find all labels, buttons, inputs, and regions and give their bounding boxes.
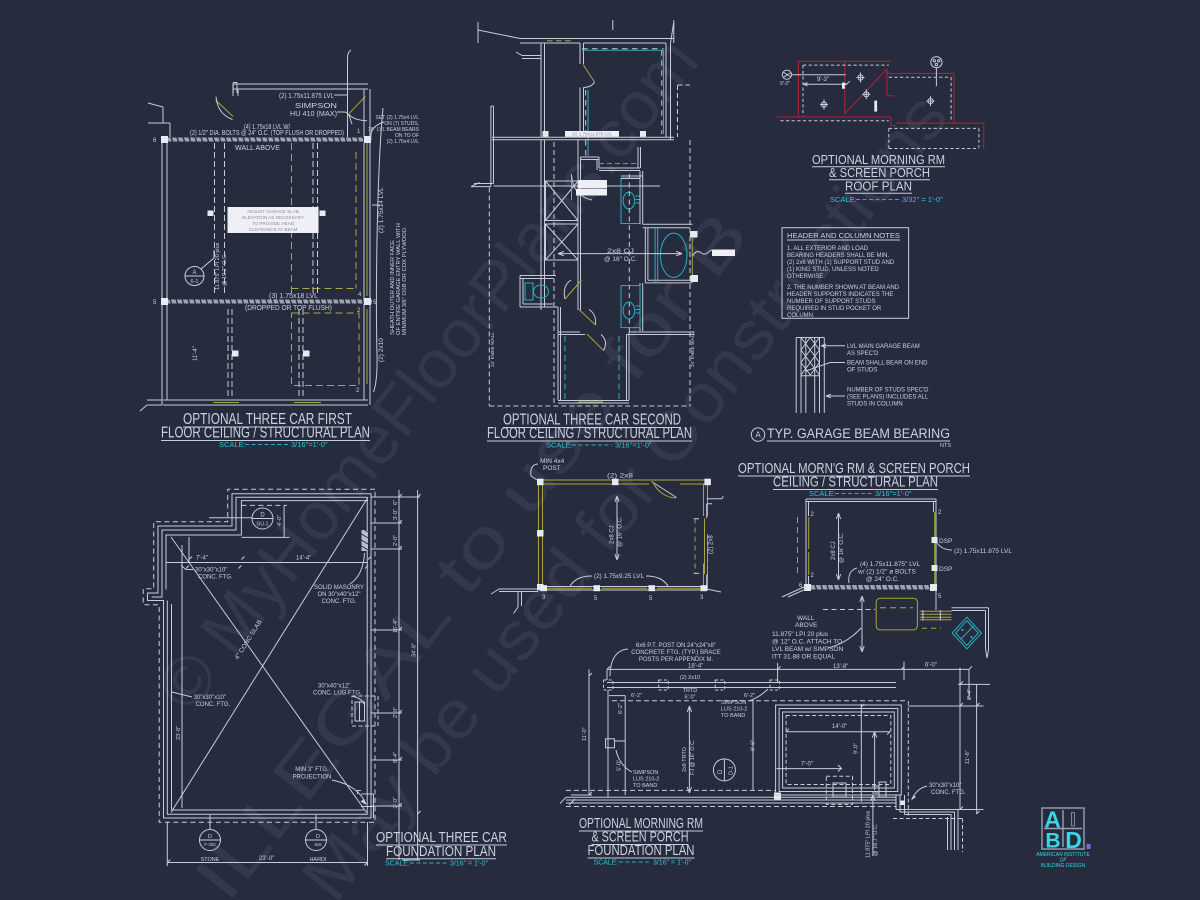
svg-text:16'-4": 16'-4" xyxy=(393,619,399,633)
svg-text:SCALE:: SCALE: xyxy=(219,440,246,449)
svg-text:7'-0": 7'-0" xyxy=(801,762,813,768)
svg-text:D: D xyxy=(718,769,724,774)
svg-text:HARDI: HARDI xyxy=(309,857,327,863)
svg-text:14'-0": 14'-0" xyxy=(832,724,847,730)
svg-text:ITT 31.88 OR EQUAL: ITT 31.88 OR EQUAL xyxy=(772,654,835,661)
svg-text:A: A xyxy=(192,270,196,276)
svg-text:SCALE:: SCALE: xyxy=(594,860,619,867)
svg-text:6'-2": 6'-2" xyxy=(744,693,755,699)
svg-text:TYP. GARAGE BEAM BEARING: TYP. GARAGE BEAM BEARING xyxy=(767,426,950,441)
svg-text:11.875" LPI 20 plus: 11.875" LPI 20 plus xyxy=(866,810,872,858)
svg-text:DSP: DSP xyxy=(939,566,952,573)
svg-text:(2) 1.75x11.875 LVL: (2) 1.75x11.875 LVL xyxy=(279,93,334,100)
svg-text:(3) 1.75x18 LVL: (3) 1.75x18 LVL xyxy=(269,293,318,300)
svg-text:FLOOR CEILING / STRUCTURAL PLA: FLOOR CEILING / STRUCTURAL PLAN xyxy=(487,425,692,442)
svg-text:30"x30"x10": 30"x30"x10" xyxy=(195,568,227,574)
svg-text:HEADER SUPPORTS INDICATES THE: HEADER SUPPORTS INDICATES THE xyxy=(787,292,893,298)
svg-text:NTS: NTS xyxy=(940,443,951,449)
svg-text:23'-8": 23'-8" xyxy=(176,726,182,740)
svg-text:(1) KING STUD, UNLESS NOTED: (1) KING STUD, UNLESS NOTED xyxy=(787,267,879,273)
svg-text:3/16" = 1'-0": 3/16" = 1'-0" xyxy=(653,860,692,867)
svg-text:13'-8": 13'-8" xyxy=(833,664,848,670)
svg-text:FJ @ 16" O.C.: FJ @ 16" O.C. xyxy=(690,739,696,775)
svg-text:2x8 CJ: 2x8 CJ xyxy=(831,541,837,560)
svg-text:SCALE:: SCALE: xyxy=(385,861,410,868)
svg-text:11.875" LPI 20 plus: 11.875" LPI 20 plus xyxy=(215,242,221,290)
svg-text:8'-4": 8'-4" xyxy=(393,752,399,763)
svg-text:OF STUDS: OF STUDS xyxy=(847,368,877,374)
svg-text:FLOOR CEILING / STRUCTURAL PLA: FLOOR CEILING / STRUCTURAL PLAN xyxy=(161,425,370,442)
svg-text:BEARING HEADERS SHALL BE MIN.: BEARING HEADERS SHALL BE MIN. xyxy=(787,253,889,259)
svg-text:6x6 P.T. POST ON 24"x24"x8": 6x6 P.T. POST ON 24"x24"x8" xyxy=(636,643,716,649)
svg-text:2'-0": 2'-0" xyxy=(393,797,399,808)
svg-text:24' KNEE WALL: 24' KNEE WALL xyxy=(690,332,696,367)
svg-text:OTHERWISE.: OTHERWISE. xyxy=(787,274,825,280)
svg-text:@ 16.7" O.C.: @ 16.7" O.C. xyxy=(873,823,879,856)
svg-text:2'-0": 2'-0" xyxy=(393,535,399,546)
svg-text:DSP: DSP xyxy=(939,538,952,545)
svg-text:6": 6" xyxy=(393,500,399,505)
svg-text:(DROPPED OR TOP FLUSH): (DROPPED OR TOP FLUSH) xyxy=(245,305,332,312)
svg-text:9'-3": 9'-3" xyxy=(817,77,829,83)
svg-text:SCALE:: SCALE: xyxy=(830,195,857,204)
svg-text:(2) 1.75x11.875 LVL: (2) 1.75x11.875 LVL xyxy=(572,132,613,137)
svg-text:HEADER AND COLUMN NOTES: HEADER AND COLUMN NOTES xyxy=(787,231,900,240)
svg-text:ELEVATION AS NECESSARY: ELEVATION AS NECESSARY xyxy=(242,215,304,220)
svg-text:B: B xyxy=(1045,830,1060,853)
svg-text:6'-2": 6'-2" xyxy=(618,703,624,714)
svg-text:POSTS PER APPENDIX M.: POSTS PER APPENDIX M. xyxy=(639,657,714,663)
svg-text:11'-0": 11'-0" xyxy=(582,727,588,741)
svg-text:SCALE:: SCALE: xyxy=(546,441,573,450)
svg-text:ABOVE: ABOVE xyxy=(795,622,818,629)
svg-text:CONC. FTG.: CONC. FTG. xyxy=(196,702,231,708)
svg-text:5'-0": 5'-0" xyxy=(617,760,623,771)
svg-text:3/32" = 1'-0": 3/32" = 1'-0" xyxy=(902,195,943,204)
svg-text:23'-0": 23'-0" xyxy=(259,856,274,862)
svg-text:6'-0": 6'-0" xyxy=(685,695,696,701)
svg-text:w/ (2) 1/2" ø BOLTS: w/ (2) 1/2" ø BOLTS xyxy=(857,569,916,576)
svg-text:CONC. FTG.: CONC. FTG. xyxy=(198,575,233,581)
svg-text:SCALE:: SCALE: xyxy=(809,489,836,498)
svg-text:6-1: 6-1 xyxy=(191,279,199,285)
svg-text:(2) 2x8: (2) 2x8 xyxy=(607,473,633,480)
svg-text:GU-1: GU-1 xyxy=(257,522,269,528)
svg-text:34'-8": 34'-8" xyxy=(412,643,418,657)
svg-text:ADJUST GARAGE SLAB: ADJUST GARAGE SLAB xyxy=(247,209,299,214)
svg-text:MINIMUM 3/8" OSB OR COX PLYWOO: MINIMUM 3/8" OSB OR COX PLYWOOD. xyxy=(402,226,408,335)
svg-text:3/16"=1'-0": 3/16"=1'-0" xyxy=(291,440,328,449)
svg-text:30"x40"x12": 30"x40"x12" xyxy=(318,684,350,690)
svg-text:3/16"=1'-0": 3/16"=1'-0" xyxy=(875,489,912,498)
svg-text:CONC. FTG.: CONC. FTG. xyxy=(322,599,357,605)
svg-text:SOLID MASONRY: SOLID MASONRY xyxy=(314,585,364,591)
svg-text:MIN 3" FTG.: MIN 3" FTG. xyxy=(295,767,329,773)
svg-text:POST: POST xyxy=(543,465,561,472)
svg-text:(2) 1.75x14 LVL: (2) 1.75x14 LVL xyxy=(378,187,385,233)
svg-text:TO BAND: TO BAND xyxy=(633,783,657,789)
svg-text:11'-8": 11'-8" xyxy=(965,750,971,764)
svg-text:CONC. FTG.: CONC. FTG. xyxy=(931,790,966,796)
svg-text:FOUNDATION PLAN: FOUNDATION PLAN xyxy=(386,843,496,860)
svg-text:SIMPSON: SIMPSON xyxy=(295,103,337,110)
svg-text:TO BAND: TO BAND xyxy=(721,713,745,719)
svg-text:9'-6": 9'-6" xyxy=(751,740,757,751)
svg-text:4'-0": 4'-0" xyxy=(277,515,283,526)
svg-text:30"x30"x10": 30"x30"x10" xyxy=(194,695,226,701)
svg-text:3/16"=1'-0": 3/16"=1'-0" xyxy=(615,441,652,450)
svg-text:18'-4": 18'-4" xyxy=(688,664,703,670)
svg-text:CONCRETE FTG. (TYP.) BRACE: CONCRETE FTG. (TYP.) BRACE xyxy=(631,650,721,656)
svg-text:ROOF PLAN: ROOF PLAN xyxy=(845,179,912,194)
svg-text:(SEE PLANS) INCLUDES ALL: (SEE PLANS) INCLUDES ALL xyxy=(847,395,929,401)
svg-text:6'-2": 6'-2" xyxy=(631,693,642,699)
svg-text:ON 30"x40"x12": ON 30"x40"x12" xyxy=(317,592,360,598)
svg-text:REQUIRED IN STUD POCKET OR: REQUIRED IN STUD POCKET OR xyxy=(787,306,882,312)
svg-text:STONE: STONE xyxy=(201,857,220,863)
svg-text:D-1: D-1 xyxy=(729,766,735,775)
svg-text:1. ALL EXTERIOR AND LOAD: 1. ALL EXTERIOR AND LOAD xyxy=(787,246,869,252)
svg-text:11.875" LPI 20 plus: 11.875" LPI 20 plus xyxy=(772,631,829,638)
svg-text:2'-0": 2'-0" xyxy=(393,707,399,718)
svg-text:3'-0": 3'-0" xyxy=(393,509,399,520)
svg-text:(2) 1.75x11.875 LVL: (2) 1.75x11.875 LVL xyxy=(954,548,1012,555)
svg-text:FOUNDATION PLAN: FOUNDATION PLAN xyxy=(588,842,695,859)
svg-text:SIMPSON: SIMPSON xyxy=(633,770,658,776)
svg-text:WALL: WALL xyxy=(797,615,815,622)
svg-text:(2) 2x10: (2) 2x10 xyxy=(378,338,385,362)
svg-text:(2) 1.75x4 LVL: (2) 1.75x4 LVL xyxy=(387,139,420,145)
svg-text:(2) 2x8: (2) 2x8 xyxy=(709,535,715,554)
svg-text:@ 24" O.C.: @ 24" O.C. xyxy=(866,576,899,583)
svg-text:30"x30"x10": 30"x30"x10" xyxy=(929,783,961,789)
svg-text:3/16" = 1'-0": 3/16" = 1'-0" xyxy=(450,861,489,868)
svg-text:(2) 2x10: (2) 2x10 xyxy=(680,675,700,681)
svg-text:6x6: 6x6 xyxy=(314,842,322,847)
svg-text:TO PROVIDE HEAD: TO PROVIDE HEAD xyxy=(252,221,295,226)
svg-text:LVL MAIN GARAGE BEAM: LVL MAIN GARAGE BEAM xyxy=(847,344,920,350)
svg-text:(2) 1.75x9.25 LVL: (2) 1.75x9.25 LVL xyxy=(594,573,644,580)
svg-text:2'-4": 2'-4" xyxy=(967,689,973,700)
svg-text:LUS 210-2: LUS 210-2 xyxy=(721,707,747,713)
svg-text:PROJECTION: PROJECTION xyxy=(293,775,332,781)
svg-text:11'-4": 11'-4" xyxy=(193,346,199,361)
svg-text:CLEARANCE AT BEAM: CLEARANCE AT BEAM xyxy=(249,227,298,232)
svg-text:A: A xyxy=(755,431,761,440)
svg-text:LUS 210-2: LUS 210-2 xyxy=(633,777,659,783)
svg-text:WALL ABOVE: WALL ABOVE xyxy=(235,143,280,152)
svg-text:@ 16" O.C.: @ 16" O.C. xyxy=(618,516,624,547)
svg-text:CEILING / STRUCTURAL PLAN: CEILING / STRUCTURAL PLAN xyxy=(773,474,938,491)
svg-text:F-250: F-250 xyxy=(204,842,216,847)
svg-text:2. THE NUMBER SHOWN AT BEAM AN: 2. THE NUMBER SHOWN AT BEAM AND xyxy=(787,285,900,291)
svg-text:7'-4": 7'-4" xyxy=(196,556,208,562)
svg-text:COLUMN.: COLUMN. xyxy=(787,313,815,319)
svg-text:D: D xyxy=(1065,827,1082,853)
svg-text:@ 16" O.C.: @ 16" O.C. xyxy=(604,256,637,263)
svg-text:6'-0": 6'-0" xyxy=(925,663,937,669)
svg-text:(2) 1/2" DIA. BOLTS @ 24" O.C.: (2) 1/2" DIA. BOLTS @ 24" O.C. (TOP FLUS… xyxy=(190,130,344,137)
svg-text:BUILDING DESIGN: BUILDING DESIGN xyxy=(1041,863,1086,869)
svg-text:2x8 CJ: 2x8 CJ xyxy=(610,525,616,544)
svg-text:D: D xyxy=(208,834,212,840)
svg-text:(4) 1.75x11.875" LVL: (4) 1.75x11.875" LVL xyxy=(860,561,921,568)
svg-text:BEAM SHALL BEAR ON END: BEAM SHALL BEAR ON END xyxy=(847,361,928,367)
svg-text:D: D xyxy=(260,513,265,519)
svg-text:@ 12" O.C. ATTACH TO: @ 12" O.C. ATTACH TO xyxy=(772,639,842,646)
svg-text:9'-2": 9'-2" xyxy=(780,81,790,87)
svg-text:@ 19.2" O.C.: @ 19.2" O.C. xyxy=(222,253,228,286)
svg-text:14'-4": 14'-4" xyxy=(296,556,311,562)
svg-text:D: D xyxy=(316,834,320,840)
svg-text:24' KNEE WALL: 24' KNEE WALL xyxy=(490,332,496,367)
svg-text:NUMBER OF STUDS SPEC'D: NUMBER OF STUDS SPEC'D xyxy=(847,388,929,394)
svg-text:@ 16" O.C.: @ 16" O.C. xyxy=(839,532,845,563)
svg-text:NUMBER OF SUPPORT STUDS: NUMBER OF SUPPORT STUDS xyxy=(787,299,875,305)
svg-text:AS SPEC'D: AS SPEC'D xyxy=(847,351,879,357)
svg-text:STUDS IN COLUMN: STUDS IN COLUMN xyxy=(847,402,903,408)
svg-text:HU 410 (MAX): HU 410 (MAX) xyxy=(290,111,337,118)
svg-text:9'-0": 9'-0" xyxy=(854,743,860,754)
svg-text:MIN 4x4: MIN 4x4 xyxy=(540,458,565,465)
svg-text:(2) 2x6 WITH (1) SUPPORT STUD: (2) 2x6 WITH (1) SUPPORT STUD AND xyxy=(787,260,895,266)
svg-text:SIMPSON: SIMPSON xyxy=(721,700,746,706)
svg-text:TRTD: TRTD xyxy=(683,688,698,694)
svg-text:2x8 TRTD: 2x8 TRTD xyxy=(682,747,688,772)
